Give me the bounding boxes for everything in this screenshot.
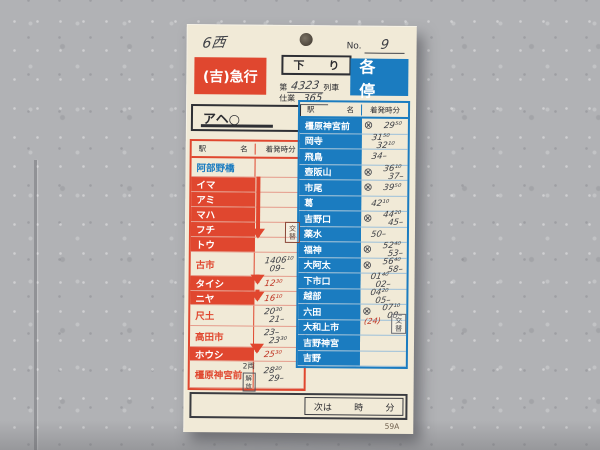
time-column-header: 着発時分 — [362, 104, 408, 115]
handwritten-red-note: (24) — [364, 316, 382, 326]
local-type-badge: 各停 — [350, 58, 408, 96]
train-number-underline: 4323 — [287, 79, 323, 93]
direction-char-2: り — [328, 57, 339, 73]
station-row: 下市口01⁴⁰02– — [298, 273, 406, 289]
left-table-rows: 阿部野橋イマアミマハフチトウ古市1406¹⁰09–タイシ12³⁰ニヤ16¹⁰尺土… — [190, 158, 306, 389]
station-row: イマ — [191, 177, 305, 193]
station-row: 吉野 — [298, 350, 406, 366]
station-name: 下市口 — [298, 273, 360, 288]
station-name: 大阿太 — [299, 257, 361, 272]
crossing-loop-icon: ⊗ — [364, 121, 373, 131]
handwritten-time: 45– — [388, 219, 404, 228]
handwritten-time: 42¹⁰ — [371, 199, 390, 208]
handwritten-time: 29– — [268, 374, 284, 383]
serial-number: No. 9 — [347, 37, 405, 54]
station-row: アミ — [191, 192, 305, 208]
direction-box: 下 り — [281, 55, 351, 76]
time-lines: 29⁵⁰ — [374, 122, 402, 130]
uncouple-cars: 2両 — [240, 360, 258, 371]
station-name: イマ — [191, 177, 255, 192]
station-row: 市尾⊗39⁵⁰ — [299, 180, 407, 196]
station-name: 吉野神宮 — [298, 335, 360, 350]
down-arrow-icon — [255, 345, 259, 352]
station-name: 吉野口 — [299, 211, 361, 226]
uncouple-action: 解 放 — [242, 373, 255, 392]
train-number-line: 第 4323 列車 — [279, 79, 353, 94]
train-number-value: 4323 — [290, 78, 320, 92]
station-row: ニヤ16¹⁰ — [190, 291, 304, 306]
time-lines: 31⁵⁰32¹⁰ — [362, 133, 395, 149]
station-name: 吉野 — [298, 350, 360, 365]
next-duty-cell: 次は 時 分 — [305, 397, 404, 416]
header-station-char2: 名 — [346, 104, 354, 115]
station-name: フチ — [191, 222, 255, 237]
handwritten-time: 29⁵⁰ — [384, 122, 403, 131]
station-row: 高田市23–23³⁰ — [190, 326, 304, 348]
time-lines: 50– — [361, 230, 386, 238]
express-type-badge: (吉)急行 — [194, 57, 266, 95]
right-table-header: 駅 名 着発時分 — [300, 102, 408, 119]
station-row: 古市1406¹⁰09– — [191, 252, 305, 277]
time-cell: ⊗29⁵⁰ — [362, 119, 408, 134]
wall-seam — [34, 160, 37, 450]
station-name: 薬水 — [299, 226, 361, 241]
station-name: 大和上市 — [298, 319, 360, 334]
handwritten-car-note: 6西 — [201, 32, 227, 53]
next-duty-box: 次は 時 分 — [189, 392, 407, 420]
time-lines: 34– — [362, 153, 387, 161]
station-name: 葛 — [299, 195, 361, 210]
crossing-loop-icon: ⊗ — [363, 245, 372, 255]
handwritten-time: 25³⁰ — [263, 350, 282, 359]
handwritten-time: 21– — [269, 315, 285, 324]
station-row: 六田⊗07¹⁰08– — [298, 304, 406, 320]
time-cell: ⊗52⁴⁰53– — [361, 243, 407, 258]
station-row: 橿原神宮前⊗29⁵⁰ — [300, 118, 408, 134]
station-name: ホウシ — [190, 347, 254, 361]
handwritten-time: 34– — [371, 153, 387, 162]
punch-hole — [300, 33, 313, 46]
station-column-header: 駅 名 — [300, 103, 362, 115]
next-label: 次は — [314, 400, 332, 413]
crossing-loop-icon: ⊗ — [363, 183, 372, 193]
station-name: ニヤ — [190, 291, 254, 305]
time-cell: ⊗39⁵⁰ — [361, 181, 407, 196]
station-name: 六田 — [298, 304, 360, 319]
station-name: 飛鳥 — [300, 149, 362, 164]
time-cell: 31⁵⁰32¹⁰ — [362, 134, 408, 149]
train-prefix: 第 — [279, 82, 287, 93]
station-row: 吉野口⊗44²⁰45– — [299, 211, 407, 227]
handwritten-time: 16¹⁰ — [264, 294, 283, 303]
time-cell: ⊗36¹⁰37– — [361, 165, 407, 180]
station-row: 吉野神宮 — [298, 335, 406, 351]
time-lines: 44²⁰45– — [373, 211, 403, 227]
station-row: 壺阪山⊗36¹⁰37– — [299, 164, 407, 180]
origin-underline — [201, 124, 273, 128]
direction-char-1: 下 — [293, 57, 304, 73]
time-cell: ⊗44²⁰45– — [361, 212, 407, 227]
station-name: 岡寺 — [300, 133, 362, 148]
header-station-char1: 駅 — [199, 143, 207, 154]
station-row: マハ — [191, 207, 305, 223]
header-station-char1: 駅 — [307, 104, 315, 115]
station-row: 大和上市 — [298, 319, 406, 335]
time-lines: 1406¹⁰09– — [255, 256, 294, 272]
station-name: 阿部野橋 — [191, 158, 255, 177]
crossing-loop-icon: ⊗ — [363, 167, 372, 177]
station-name: 壺阪山 — [299, 164, 361, 179]
station-row: タイシ12³⁰ — [190, 276, 304, 292]
serial-value: 9 — [379, 38, 389, 53]
station-row: 尺土20³⁰21– — [190, 305, 304, 327]
station-row: 岡寺31⁵⁰32¹⁰ — [300, 133, 408, 149]
down-arrow-icon — [256, 177, 261, 237]
station-row: 阿部野橋 — [191, 158, 305, 178]
station-name: タイシ — [190, 276, 254, 291]
crew-change-note: 交 替 — [391, 314, 406, 334]
station-name: アミ — [191, 192, 255, 207]
time-cell: 34– — [362, 150, 408, 165]
timetable-card: 6西 No. 9 (吉)急行 下 り 第 4323 列車 仕業 365 各停 ア… — [183, 24, 417, 434]
handwritten-time: 32¹⁰ — [376, 141, 395, 150]
duty-label: 仕業 — [279, 94, 295, 103]
time-cell: 01⁴⁰02– — [360, 274, 406, 289]
handwritten-time: 23³⁰ — [268, 336, 287, 345]
station-name: 橿原神宮前 — [300, 118, 362, 133]
time-lines: 42¹⁰ — [361, 199, 389, 207]
uncouple-note: 2両 解 放 — [240, 360, 258, 391]
time-lines: 28²⁰29– — [254, 367, 284, 383]
time-cell — [360, 336, 406, 351]
train-suffix: 列車 — [323, 82, 339, 93]
form-code: 59A — [385, 422, 400, 431]
origin-box: アヘ○ — [191, 104, 301, 132]
time-lines: 23–23³⁰ — [254, 329, 287, 345]
serial-underline: 9 — [364, 38, 404, 54]
station-name: 尺土 — [190, 305, 254, 326]
crossing-loop-icon: ⊗ — [362, 307, 371, 317]
serial-label: No. — [347, 41, 362, 51]
handwritten-time: 37– — [388, 172, 404, 181]
down-arrow-icon — [256, 275, 260, 283]
station-name: マハ — [191, 207, 255, 222]
time-lines: 39⁵⁰ — [374, 184, 402, 192]
left-timetable: 駅 名 着発時分 阿部野橋イマアミマハフチトウ古市1406¹⁰09–タイシ12³… — [188, 139, 308, 391]
down-arrow-icon — [255, 290, 259, 300]
hour-label: 時 — [354, 400, 363, 413]
minute-label: 分 — [385, 400, 394, 413]
station-name: 古市 — [191, 252, 255, 276]
time-lines: 20³⁰21– — [254, 308, 284, 324]
crossing-loop-icon: ⊗ — [363, 214, 372, 224]
handwritten-time: 50– — [370, 230, 386, 239]
crossing-loop-icon: ⊗ — [363, 260, 372, 270]
handwritten-time: 12³⁰ — [264, 279, 283, 288]
handwritten-time: 09– — [269, 264, 294, 273]
time-cell — [360, 351, 406, 366]
station-name: 市尾 — [299, 180, 361, 195]
station-name: 越部 — [298, 288, 360, 303]
time-lines: 36¹⁰37– — [374, 164, 404, 180]
handwritten-time: 39⁵⁰ — [383, 184, 402, 193]
crew-change-note: 交 替 — [285, 222, 300, 243]
header-station-char2: 名 — [240, 143, 248, 154]
station-name: 高田市 — [190, 326, 254, 347]
left-table-header: 駅 名 着発時分 — [192, 141, 306, 159]
station-name: 福神 — [299, 242, 361, 257]
station-name: トウ — [191, 237, 255, 252]
station-column-header: 駅 名 — [192, 143, 256, 155]
